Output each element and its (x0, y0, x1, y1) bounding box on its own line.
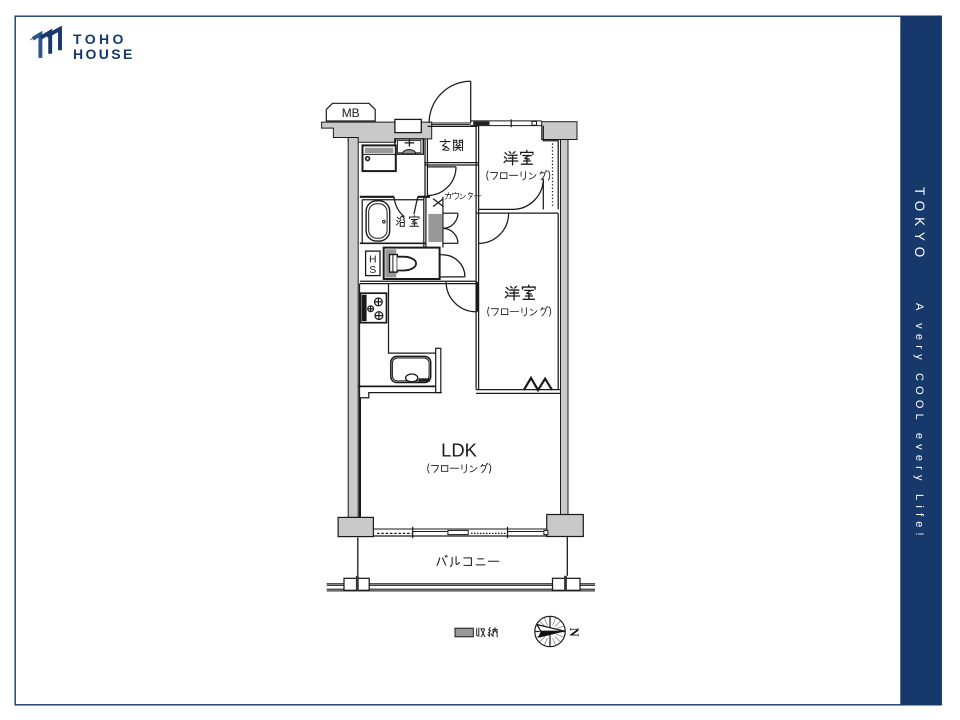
svg-text:N: N (567, 628, 581, 637)
svg-text:TOHO: TOHO (73, 31, 127, 47)
svg-text:S: S (369, 264, 376, 276)
svg-text:TOKYO: TOKYO (912, 187, 927, 263)
svg-text:A very COOL every Life!: A very COOL every Life! (913, 303, 925, 541)
svg-text:LDK: LDK (441, 440, 478, 461)
svg-text:MB: MB (342, 106, 360, 120)
svg-text:HOUSE: HOUSE (73, 46, 135, 62)
